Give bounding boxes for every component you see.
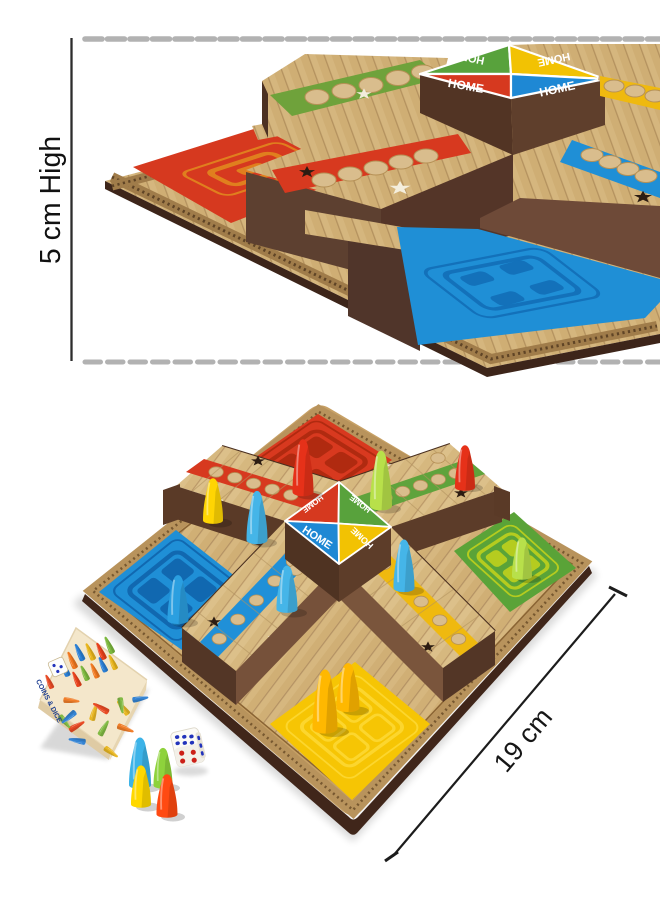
svg-text:5 cm High: 5 cm High: [35, 136, 67, 264]
